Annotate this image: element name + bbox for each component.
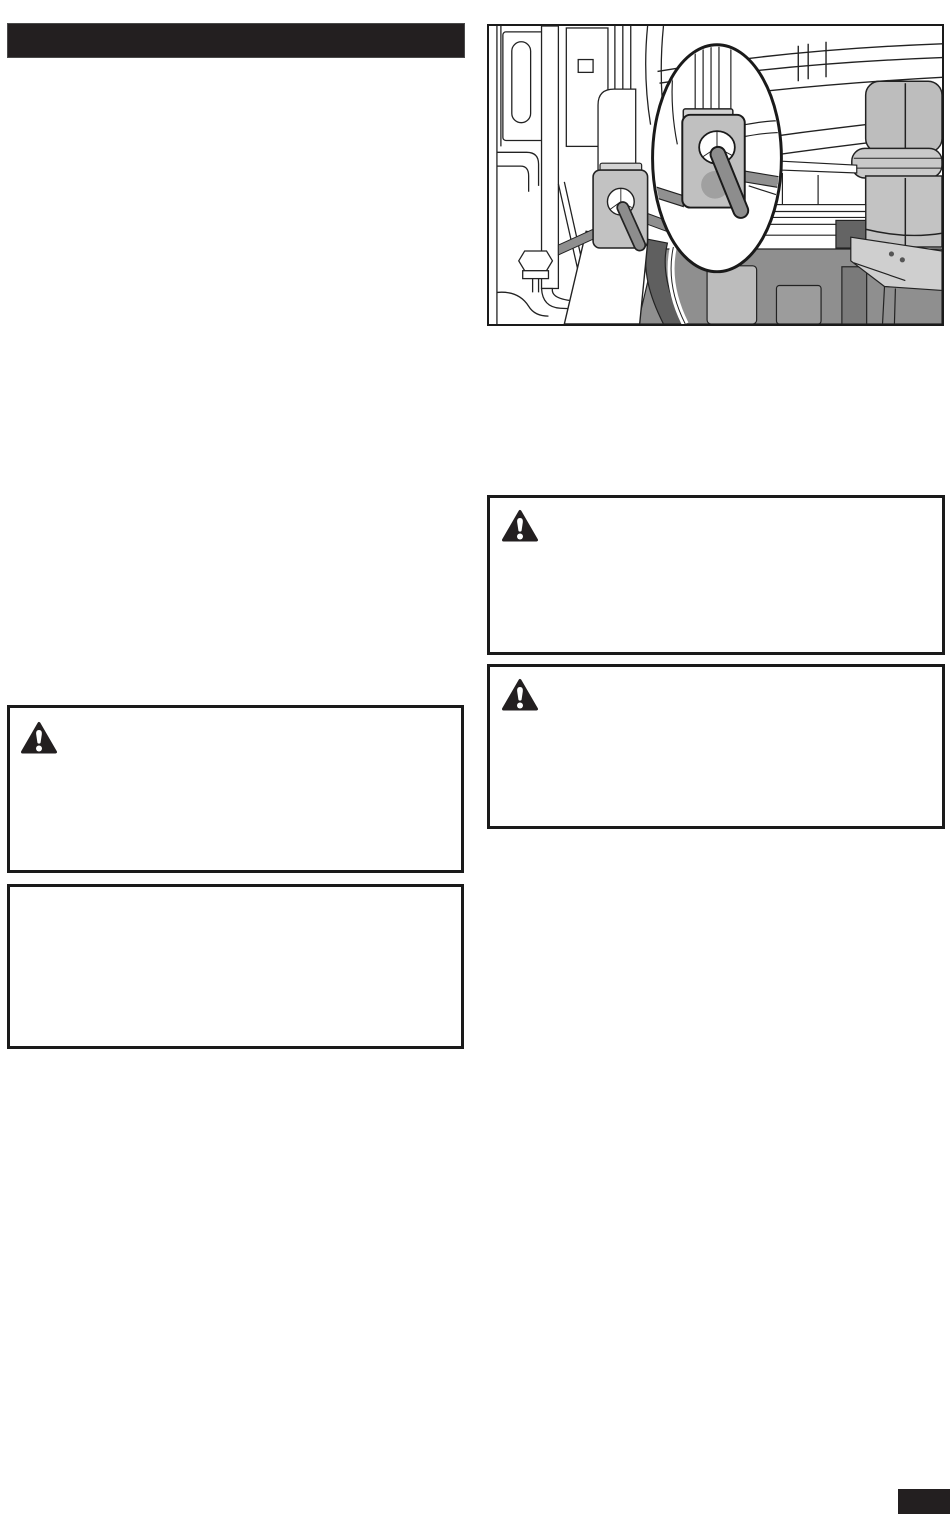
page-number-tab	[898, 1489, 950, 1514]
manual-page	[0, 0, 950, 1514]
deck-pin-figure	[487, 24, 944, 326]
warning-box-right-top	[487, 495, 945, 655]
deck-pin-figure-drawing	[489, 26, 942, 324]
magnifier-ellipse	[653, 45, 782, 272]
section-header-bar	[7, 23, 465, 58]
warning-text	[550, 681, 932, 818]
warning-text	[550, 512, 932, 644]
warning-triangle-icon	[501, 509, 539, 543]
warning-triangle-icon	[501, 678, 539, 712]
note-text	[24, 899, 451, 1038]
warning-box-left	[7, 705, 464, 873]
warning-triangle-icon	[20, 721, 58, 755]
warning-text	[70, 722, 451, 862]
note-box	[7, 884, 464, 1049]
warning-box-right-bottom	[487, 664, 945, 829]
